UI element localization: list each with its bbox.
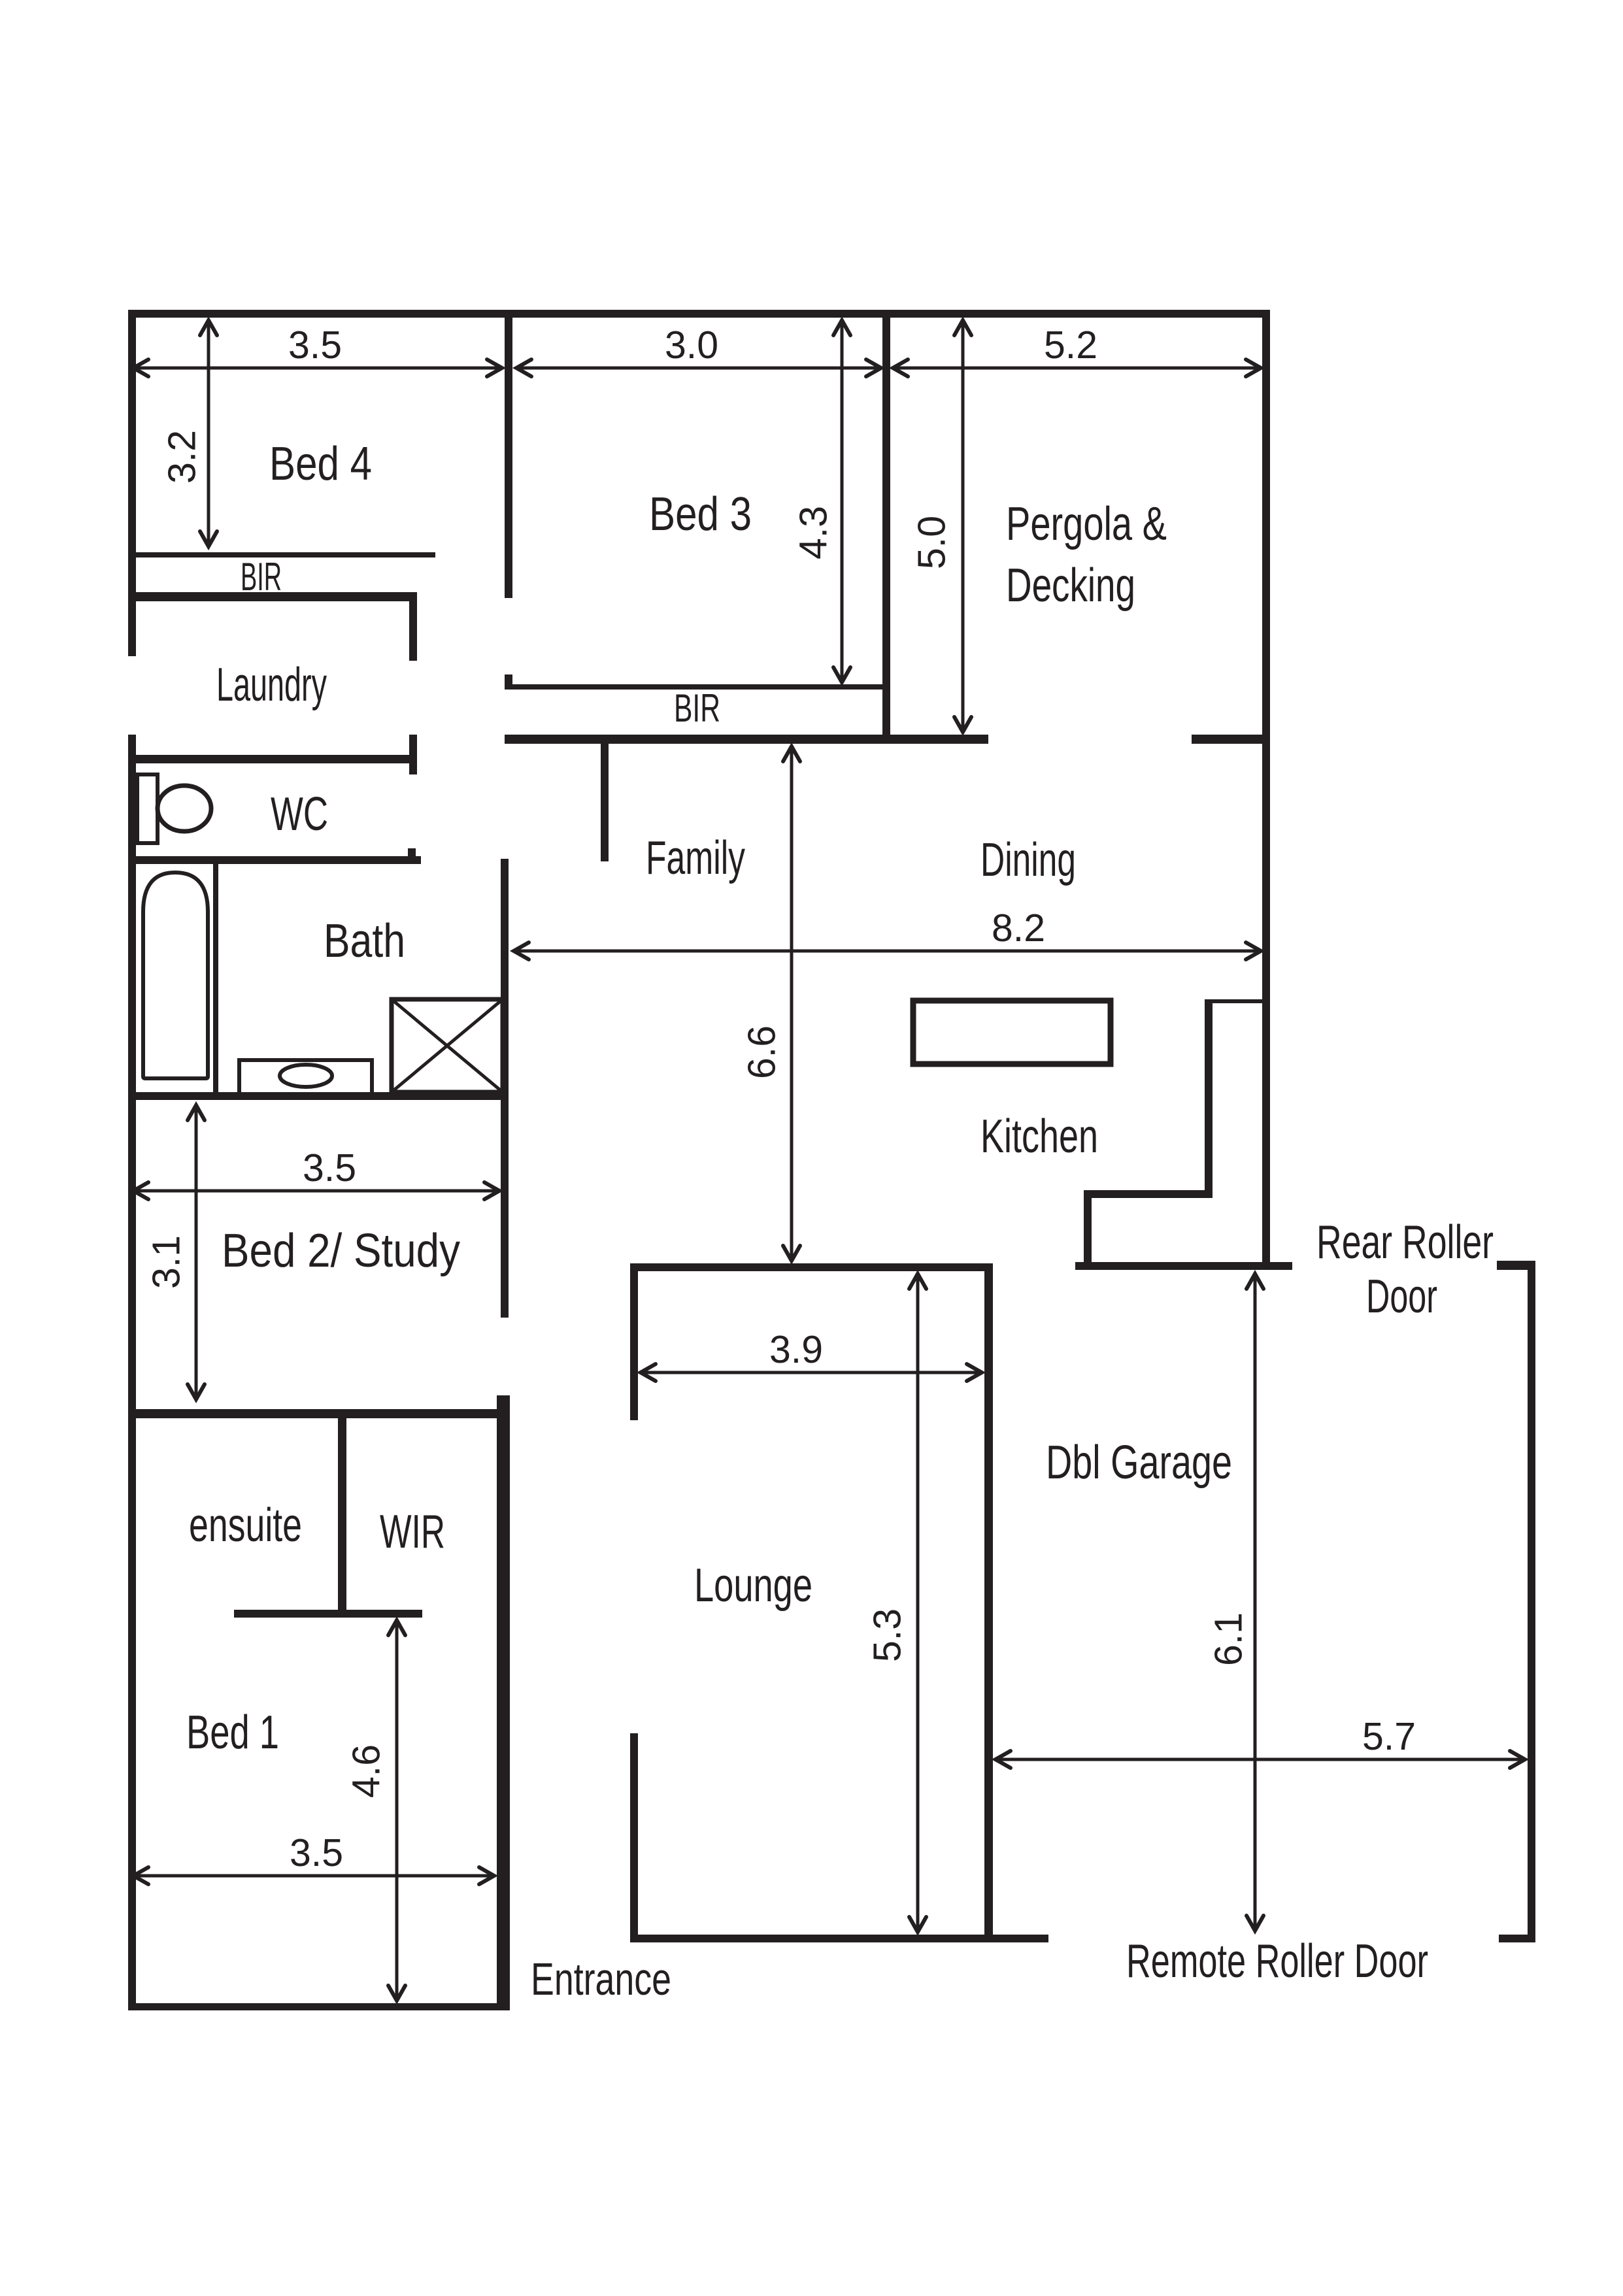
svg-text:BIR: BIR: [674, 686, 720, 730]
svg-text:Dbl Garage: Dbl Garage: [1046, 1437, 1232, 1489]
svg-text:ensuite: ensuite: [189, 1499, 302, 1552]
svg-text:6.6: 6.6: [741, 1025, 784, 1079]
svg-text:3.5: 3.5: [303, 1146, 356, 1190]
svg-text:8.2: 8.2: [992, 907, 1045, 950]
svg-text:Bed 1: Bed 1: [186, 1706, 279, 1759]
svg-text:Bed 3: Bed 3: [649, 488, 752, 541]
svg-text:Bed 2/ Study: Bed 2/ Study: [222, 1225, 460, 1277]
svg-text:3.0: 3.0: [665, 324, 718, 367]
svg-text:3.2: 3.2: [161, 430, 204, 484]
svg-text:5.0: 5.0: [911, 516, 954, 569]
svg-text:Decking: Decking: [1006, 559, 1135, 612]
svg-text:Lounge: Lounge: [694, 1559, 812, 1612]
svg-text:Door: Door: [1366, 1271, 1437, 1323]
svg-text:Laundry: Laundry: [216, 659, 327, 711]
svg-text:3.1: 3.1: [145, 1235, 188, 1289]
svg-text:WC: WC: [271, 788, 328, 840]
svg-text:4.6: 4.6: [345, 1744, 388, 1798]
svg-text:3.9: 3.9: [769, 1328, 823, 1371]
svg-text:Pergola &: Pergola &: [1006, 498, 1167, 550]
svg-text:5.2: 5.2: [1044, 324, 1097, 367]
svg-text:BIR: BIR: [241, 555, 282, 599]
svg-text:Dining: Dining: [980, 834, 1076, 886]
svg-text:Bed 4: Bed 4: [269, 438, 372, 490]
svg-text:Bath: Bath: [324, 915, 405, 967]
svg-text:Rear Roller: Rear Roller: [1316, 1216, 1494, 1269]
svg-text:3.5: 3.5: [288, 324, 342, 367]
svg-text:4.3: 4.3: [792, 506, 835, 559]
svg-text:5.7: 5.7: [1362, 1715, 1416, 1758]
svg-text:Remote Roller Door: Remote Roller Door: [1126, 1935, 1428, 1988]
svg-text:Entrance: Entrance: [531, 1954, 671, 2005]
svg-text:3.5: 3.5: [290, 1831, 343, 1874]
svg-text:WIR: WIR: [380, 1506, 445, 1558]
svg-text:Kitchen: Kitchen: [980, 1110, 1098, 1163]
svg-text:5.3: 5.3: [866, 1608, 909, 1662]
svg-text:Family: Family: [646, 832, 745, 884]
svg-text:6.1: 6.1: [1207, 1612, 1250, 1666]
